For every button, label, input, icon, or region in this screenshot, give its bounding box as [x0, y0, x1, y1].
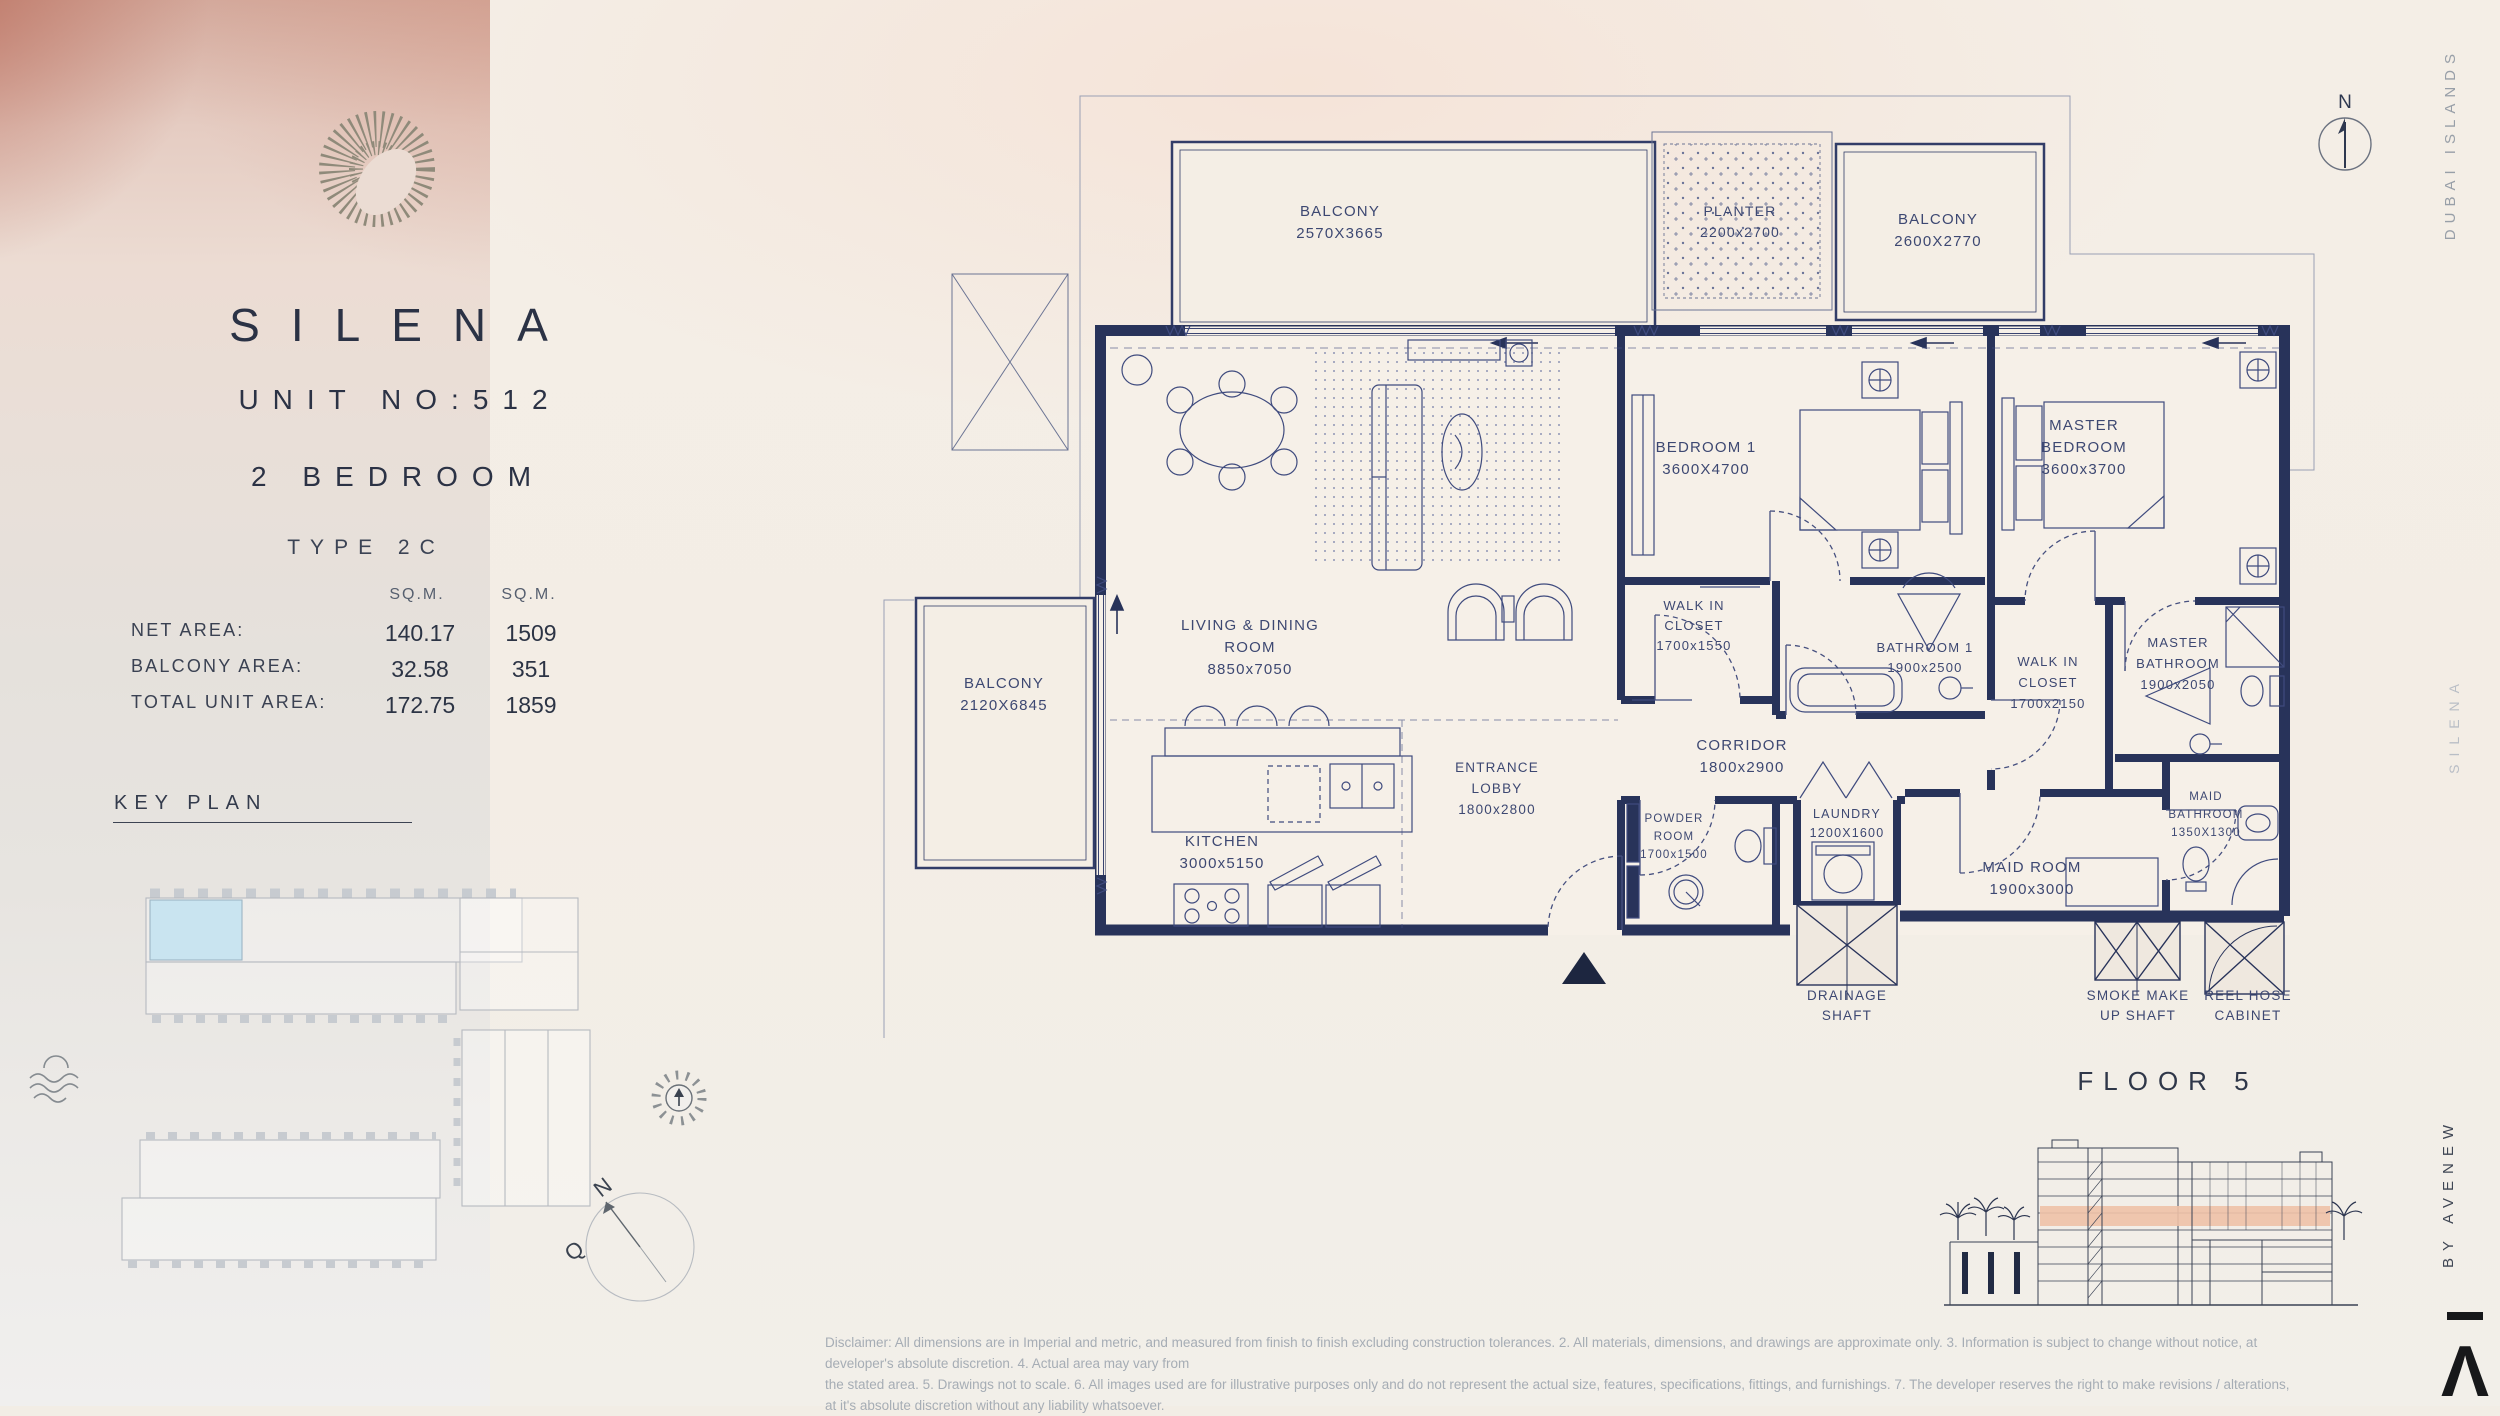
- total-area-sqft: 1859: [505, 692, 556, 719]
- svg-text:2120X6845: 2120X6845: [960, 697, 1048, 714]
- balcony-tr-floor: [1836, 144, 2044, 320]
- svg-text:1700x1500: 1700x1500: [1640, 849, 1708, 861]
- floor-elevation: FLOOR 5: [1930, 1050, 2370, 1340]
- svg-text:3000x5150: 3000x5150: [1179, 855, 1264, 872]
- balcony-area-sqft: 351: [512, 656, 550, 683]
- svg-text:CLOSET: CLOSET: [1664, 618, 1723, 633]
- svg-text:BALCONY: BALCONY: [1300, 203, 1380, 220]
- svg-text:MASTER: MASTER: [2049, 417, 2119, 434]
- key-plan-rule: [113, 822, 412, 823]
- svg-text:1900x2050: 1900x2050: [2140, 677, 2215, 692]
- svg-text:1800x2900: 1800x2900: [1699, 759, 1784, 776]
- total-area-label: TOTAL UNIT AREA:: [131, 692, 327, 713]
- table-row: TOTAL UNIT AREA: 172.75 1859: [0, 692, 600, 722]
- unit-number: UNIT NO:512: [238, 384, 561, 416]
- svg-text:LIVING & DINING: LIVING & DINING: [1181, 617, 1319, 634]
- disclaimer-line1: Disclaimer: All dimensions are in Imperi…: [825, 1332, 2290, 1374]
- svg-text:ROOM: ROOM: [1224, 639, 1275, 656]
- rug: [1310, 352, 1565, 567]
- svg-text:1700x2150: 1700x2150: [2010, 696, 2085, 711]
- svg-text:UP SHAFT: UP SHAFT: [2100, 1008, 2176, 1023]
- svg-text:ENTRANCE: ENTRANCE: [1455, 760, 1539, 775]
- svg-text:1350X1300: 1350X1300: [2171, 827, 2241, 839]
- key-plan-title: KEY PLAN: [114, 792, 267, 815]
- svg-text:PLANTER: PLANTER: [1704, 203, 1777, 219]
- silena-logo: [305, 95, 450, 245]
- entrance-marker: [1562, 952, 1606, 984]
- svg-text:ROOM: ROOM: [1654, 831, 1695, 843]
- developer-label: BY AVENEW: [2440, 1118, 2457, 1268]
- drainage-shaft-box: [1797, 905, 1897, 1000]
- svg-text:2600X2770: 2600X2770: [1894, 233, 1982, 250]
- keyplan-building-b: [462, 1030, 590, 1206]
- logo-lambda: Λ: [2441, 1332, 2489, 1412]
- svg-text:2570X3665: 2570X3665: [1296, 225, 1384, 242]
- keyplan-annex: [460, 898, 578, 1010]
- north-label: N: [2338, 92, 2352, 113]
- unit-type: TYPE 2C: [287, 536, 445, 560]
- floor-title: FLOOR 5: [2077, 1066, 2258, 1096]
- svg-text:WALK IN: WALK IN: [2017, 654, 2078, 669]
- lift-shaft: [952, 274, 1068, 450]
- disclaimer: Disclaimer: All dimensions are in Imperi…: [825, 1332, 2290, 1416]
- svg-text:SMOKE MAKE: SMOKE MAKE: [2087, 988, 2190, 1003]
- svg-text:8850x7050: 8850x7050: [1207, 661, 1292, 678]
- svg-text:BATHROOM: BATHROOM: [2168, 809, 2243, 821]
- compass-q-label: Q: [560, 1236, 589, 1266]
- svg-text:3600x3700: 3600x3700: [2041, 461, 2126, 478]
- svg-text:BALCONY: BALCONY: [964, 675, 1044, 692]
- disclaimer-line2: the stated area. 5. Drawings not to scal…: [825, 1374, 2290, 1416]
- balcony-area-label: BALCONY AREA:: [131, 656, 303, 677]
- keyplan-building-a2: [146, 962, 456, 1014]
- svg-text:2200x2700: 2200x2700: [1700, 224, 1780, 240]
- svg-text:CLOSET: CLOSET: [2018, 675, 2077, 690]
- svg-text:SHAFT: SHAFT: [1822, 1008, 1872, 1023]
- compass-n-label: N: [589, 1172, 617, 1201]
- planter-box: [1652, 132, 1832, 310]
- svg-text:REEL HOSE: REEL HOSE: [2204, 988, 2292, 1003]
- section-pillars: [1962, 1252, 2020, 1294]
- svg-text:MAID ROOM: MAID ROOM: [1982, 859, 2081, 876]
- logo-macron: [2447, 1312, 2483, 1320]
- svg-text:CORRIDOR: CORRIDOR: [1696, 737, 1787, 754]
- svg-text:LAUNDRY: LAUNDRY: [1813, 807, 1881, 821]
- svg-text:LOBBY: LOBBY: [1471, 781, 1522, 796]
- table-row: NET AREA: 140.17 1509: [0, 620, 600, 650]
- svg-text:1700x1550: 1700x1550: [1656, 638, 1731, 653]
- room-label-wic2: WALK IN CLOSET 1700x2150: [2010, 654, 2085, 711]
- svg-text:BATHROOM 1: BATHROOM 1: [1877, 640, 1974, 655]
- smoke-shaft-box: [2095, 922, 2180, 995]
- balcony-left-floor: [916, 598, 1094, 868]
- highlighted-floor: [2040, 1206, 2330, 1226]
- key-plan-drawing: N Q: [20, 880, 780, 1310]
- area-col2-header: SQ.M.: [501, 586, 556, 604]
- svg-text:1200X1600: 1200X1600: [1810, 826, 1885, 840]
- bedroom-count: 2 BEDROOM: [251, 461, 545, 493]
- sun-icon: [656, 1075, 702, 1121]
- svg-text:1900x2500: 1900x2500: [1887, 660, 1962, 675]
- svg-text:3600X4700: 3600X4700: [1662, 461, 1750, 478]
- svg-text:MAID: MAID: [2189, 791, 2223, 803]
- net-area-sqft: 1509: [505, 620, 556, 647]
- svg-text:1800x2800: 1800x2800: [1458, 802, 1536, 817]
- balcony-tl-floor: [1172, 142, 1655, 330]
- svg-text:MASTER: MASTER: [2147, 635, 2208, 650]
- waves-icon: [30, 1056, 78, 1102]
- avenew-logo: Λ: [2430, 1308, 2500, 1400]
- net-area-sqm: 140.17: [385, 620, 455, 647]
- label-reel-hose: REEL HOSE CABINET: [2204, 988, 2292, 1023]
- table-row: BALCONY AREA: 32.58 351: [0, 656, 600, 686]
- area-col1-header: SQ.M.: [389, 586, 444, 604]
- svg-text:KITCHEN: KITCHEN: [1185, 833, 1259, 850]
- svg-text:BEDROOM 1: BEDROOM 1: [1656, 439, 1757, 456]
- svg-text:1900x3000: 1900x3000: [1989, 881, 2074, 898]
- total-area-sqm: 172.75: [385, 692, 455, 719]
- building-section: [1944, 1140, 2358, 1305]
- reel-hose-box: [2205, 922, 2284, 994]
- keyplan-building-c2: [122, 1198, 436, 1260]
- keyplan-building-c: [140, 1140, 440, 1198]
- net-area-label: NET AREA:: [131, 620, 245, 641]
- label-smoke-shaft: SMOKE MAKE UP SHAFT: [2087, 988, 2190, 1023]
- keyplan-highlighted-unit: [150, 900, 242, 960]
- svg-text:BALCONY: BALCONY: [1898, 211, 1978, 228]
- svg-text:BEDROOM: BEDROOM: [2041, 439, 2127, 456]
- svg-text:CABINET: CABINET: [2215, 1008, 2282, 1023]
- key-plan-buildings: [122, 893, 590, 1264]
- balcony-area-sqm: 32.58: [391, 656, 449, 683]
- svg-text:DRAINAGE: DRAINAGE: [1807, 988, 1887, 1003]
- location-label: DUBAI ISLANDS: [2442, 48, 2459, 240]
- svg-text:WALK IN: WALK IN: [1663, 598, 1724, 613]
- room-label-master-bedroom: MASTER BEDROOM 3600x3700: [2041, 417, 2127, 478]
- floor-plan: N BALCONY 2570X3665 PLANTER 2200x2700 BA…: [860, 60, 2340, 1070]
- svg-text:BATHROOM: BATHROOM: [2136, 656, 2220, 671]
- brand-title: SILENA: [229, 298, 579, 352]
- brand-vertical-label: SILENA: [2446, 676, 2462, 774]
- room-label-master-bath: MASTER BATHROOM 1900x2050: [2136, 635, 2220, 692]
- label-drainage-shaft: DRAINAGE SHAFT: [1807, 988, 1887, 1023]
- svg-text:POWDER: POWDER: [1645, 813, 1704, 825]
- room-label-wic1: WALK IN CLOSET 1700x1550: [1656, 598, 1731, 653]
